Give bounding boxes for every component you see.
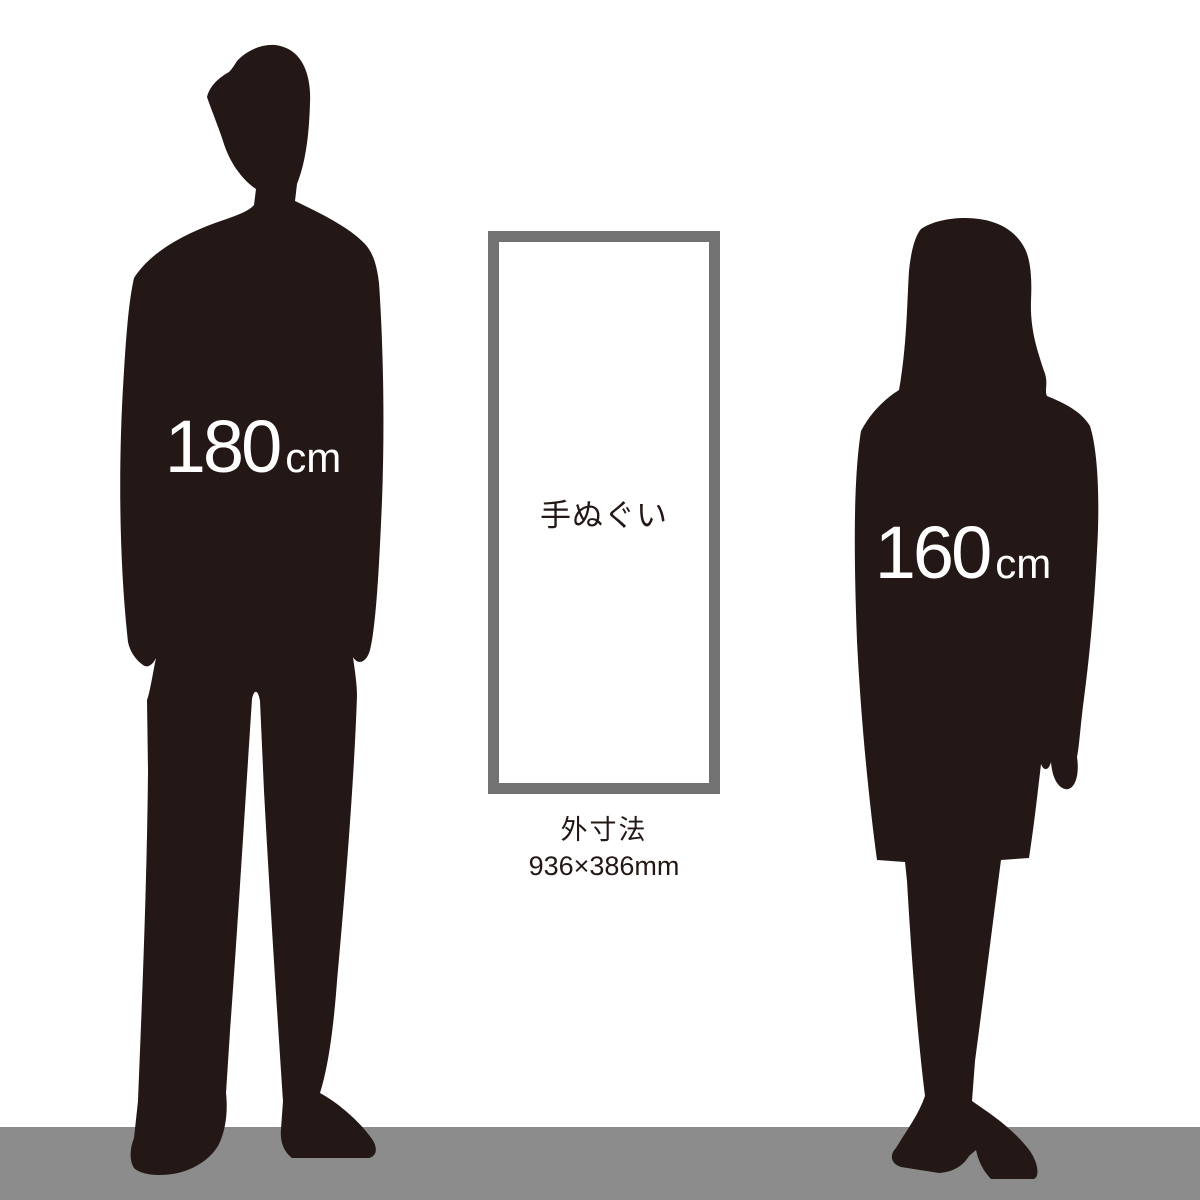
woman-height-label: 160 cm	[875, 516, 1051, 590]
woman-height-value: 160	[875, 516, 989, 590]
size-comparison-diagram: 手ぬぐい 外寸法 936×386mm 180 cm 160 cm	[0, 0, 1200, 1200]
tenugui-frame: 手ぬぐい	[488, 231, 720, 794]
man-height-unit: cm	[285, 437, 341, 479]
woman-height-unit: cm	[995, 543, 1051, 585]
dimension-title: 外寸法	[529, 812, 680, 848]
frame-product-label: 手ぬぐい	[540, 490, 668, 535]
man-height-value: 180	[165, 410, 279, 484]
dimension-caption: 外寸法 936×386mm	[529, 812, 680, 884]
woman-silhouette-icon	[855, 218, 1099, 1179]
man-height-label: 180 cm	[165, 410, 341, 484]
man-silhouette-icon	[120, 45, 383, 1175]
dimension-value: 936×386mm	[529, 848, 680, 884]
